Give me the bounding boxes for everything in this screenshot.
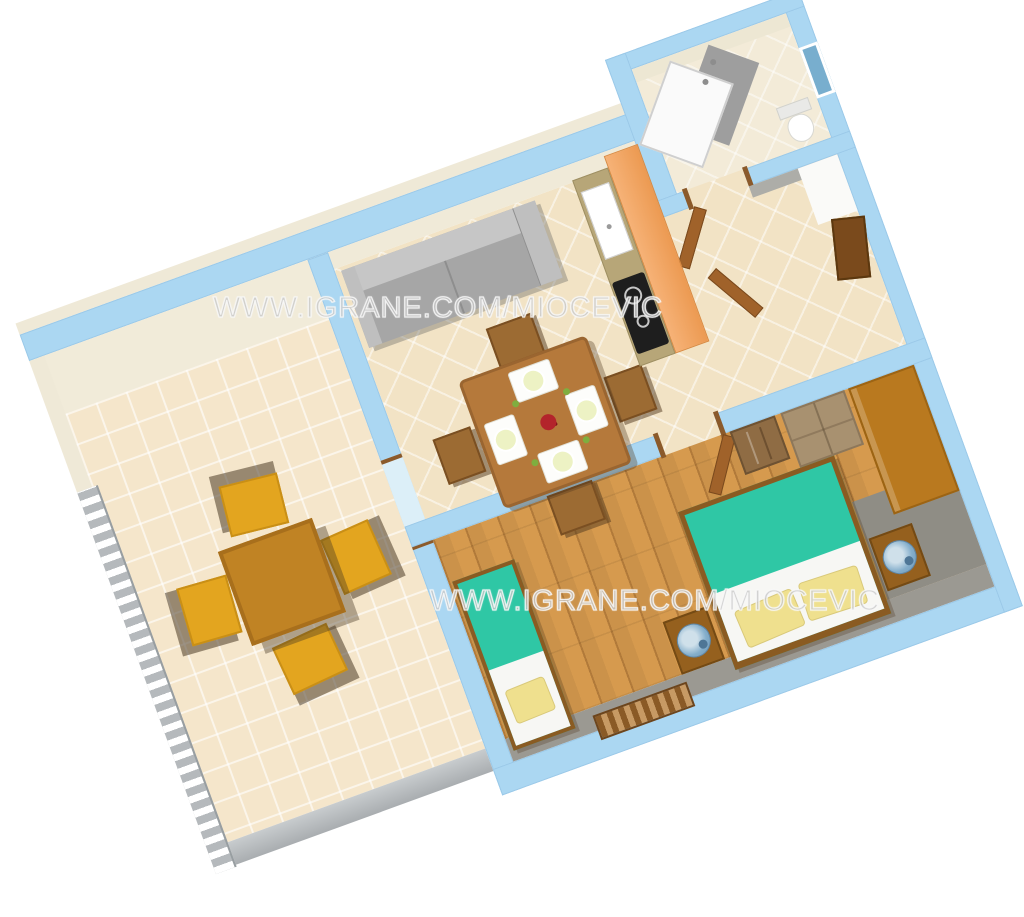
floor-plan-canvas: WWW.IGRANE.COM/MIOCEVIC WWW.IGRANE.COM/M… (0, 0, 1024, 917)
apartment-plan (0, 0, 1024, 900)
plate (518, 365, 549, 396)
plate (547, 446, 578, 477)
sink-drain (606, 223, 612, 229)
place-setting (537, 439, 589, 484)
entry-door (831, 216, 871, 281)
bedside-lamp (878, 535, 922, 579)
napkin-accent (582, 435, 591, 444)
cabinet-detail (759, 427, 772, 459)
place-setting (564, 384, 609, 436)
bedside-lamp (672, 619, 716, 663)
place-setting (483, 414, 528, 466)
watermark-text: WWW.IGRANE.COM/MIOCEVIC (430, 585, 880, 618)
dresser-seam (792, 418, 853, 442)
place-setting (507, 358, 559, 403)
flower-centerpiece (538, 412, 559, 433)
watermark-text: WWW.IGRANE.COM/MIOCEVIC (213, 292, 663, 325)
plate (490, 424, 521, 455)
plate (571, 395, 602, 426)
cabinet-detail (746, 432, 759, 464)
